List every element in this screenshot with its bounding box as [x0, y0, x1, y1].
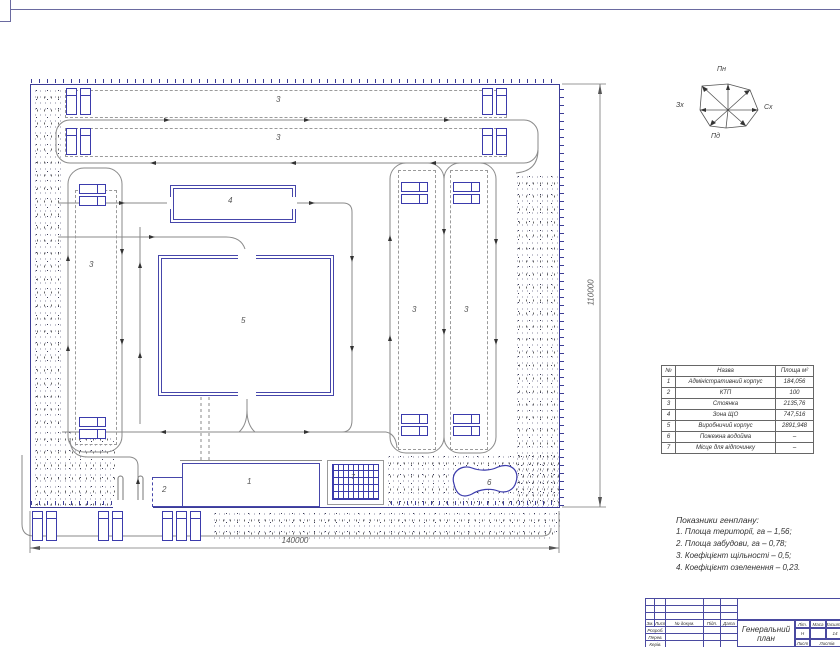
truck-symbol [453, 194, 480, 204]
col-area: Площа м² [776, 366, 814, 377]
title-block-cell [646, 606, 655, 613]
truck-symbol [46, 511, 57, 541]
scale-value-cell: 14 [826, 628, 840, 639]
title-block-cell [666, 606, 704, 613]
sheets-cell: Листів [810, 639, 840, 647]
building-service-zone [170, 185, 296, 223]
rest-area [327, 460, 384, 505]
title-block-cell: Підп. [704, 620, 721, 627]
drawing-title: Генеральний план [738, 625, 794, 643]
truck-symbol [453, 426, 480, 436]
areas-table-cell: 1 [662, 377, 676, 388]
wind-rose [686, 74, 770, 140]
areas-table-row: 6Пожежна водойма– [662, 432, 814, 443]
areas-table-cell: 5 [662, 421, 676, 432]
parking-strip-right-1 [398, 170, 436, 450]
title-block-cell: № докум. [666, 620, 704, 627]
title-block-cell: Дата [721, 620, 738, 627]
building4-left-opening [167, 197, 173, 209]
title-block-cell [666, 599, 704, 606]
building-production [158, 255, 334, 396]
indicators-title: Показники генплану: [676, 514, 840, 526]
compass-east-label: Сх [764, 104, 773, 111]
title-block-cell [721, 641, 738, 647]
scale-header-cell: Масштаб [826, 620, 840, 628]
areas-table-cell: КТП [676, 388, 776, 399]
areas-table-cell: 3 [662, 399, 676, 410]
title-block-cell [704, 613, 721, 620]
areas-table-cell: 4 [662, 410, 676, 421]
fire-pond-shape [453, 465, 517, 495]
areas-table-cell: 6 [662, 432, 676, 443]
areas-table-cell: Місце для відпочинку [676, 443, 776, 454]
label-service-zone: 4 [228, 196, 232, 205]
areas-table-row: 2КТП100 [662, 388, 814, 399]
areas-table-cell: Пожежна водойма [676, 432, 776, 443]
areas-table-row: 7Місце для відпочинку– [662, 443, 814, 454]
truck-symbol [79, 184, 106, 194]
entrance-gap [113, 500, 153, 509]
truck-symbol [401, 182, 428, 192]
indicator-line: 4. Коефіцієнт озеленення – 0,23. [676, 562, 840, 574]
label-pond: 6 [487, 478, 491, 487]
title-block-cell [704, 627, 721, 634]
lit-value-cell: Н [795, 628, 810, 639]
areas-table: № Назва Площа м² 1Адміністративний корпу… [661, 365, 814, 454]
areas-table-cell: Зона ЩО [676, 410, 776, 421]
truck-symbol [32, 511, 43, 541]
title-block-cell: Зм. [646, 620, 655, 627]
label-parking: 3 [412, 305, 416, 314]
title-block-cell [721, 613, 738, 620]
label-admin: 1 [247, 477, 251, 486]
truck-symbol [496, 88, 507, 115]
drawing-title-cell: Генеральний план [737, 620, 795, 647]
title-block-cell: Керів. [646, 641, 666, 647]
areas-table-cell: 747,516 [776, 410, 814, 421]
areas-table-row: 3Стоянка2135,76 [662, 399, 814, 410]
label-parking: 3 [89, 260, 93, 269]
building4-right-opening [291, 197, 297, 209]
areas-table-cell: – [776, 432, 814, 443]
title-block-cell [666, 634, 704, 641]
label-parking: 3 [276, 133, 280, 142]
drawing-sheet: 3 3 3 3 3 4 5 1 2 6 7 140000 110000 Пн З… [0, 0, 840, 647]
compass-south-label: Пд [711, 133, 720, 140]
title-block-cell [704, 634, 721, 641]
truck-symbol [79, 417, 106, 427]
title-block-cell: Перев. [646, 634, 666, 641]
areas-table-row: 5Виробничий корпус2891,948 [662, 421, 814, 432]
truck-symbol [401, 426, 428, 436]
compass-west-label: Зх [676, 102, 684, 109]
col-number: № [662, 366, 676, 377]
areas-table-cell: – [776, 443, 814, 454]
title-block-cell [655, 606, 666, 613]
areas-table-header-row: № Назва Площа м² [662, 366, 814, 377]
lit-header-cell: Літ. [795, 620, 810, 628]
areas-table-cell: 2 [662, 388, 676, 399]
title-block-cell: Розроб. [646, 627, 666, 634]
areas-table-row: 1Адміністративний корпус184,056 [662, 377, 814, 388]
building1-platform-edge [180, 460, 322, 461]
label-parking: 3 [464, 305, 468, 314]
title-block-cell [655, 599, 666, 606]
title-block-cell [666, 627, 704, 634]
label-production: 5 [241, 316, 245, 325]
indicator-line: 2. Площа забудови, га – 0,78; [676, 538, 840, 550]
truck-symbol [453, 182, 480, 192]
label-rest-area: 7 [351, 474, 355, 481]
title-block-cell [646, 613, 655, 620]
parking-strip-right-2 [450, 170, 488, 450]
truck-symbol [66, 88, 77, 115]
truck-symbol [80, 128, 91, 155]
truck-symbol [162, 511, 173, 541]
areas-table-cell: Стоянка [676, 399, 776, 410]
truck-symbol [401, 194, 428, 204]
areas-table-cell: 2135,76 [776, 399, 814, 410]
indicator-line: 1. Площа території, га – 1,56; [676, 526, 840, 538]
truck-symbol [98, 511, 109, 541]
truck-symbol [496, 128, 507, 155]
genplan-indicators: Показники генплану: 1. Площа території, … [676, 514, 840, 574]
title-block-cell [721, 599, 738, 606]
title-block-cell [666, 613, 704, 620]
parking-row-top-2 [65, 128, 507, 157]
building5-bottom-opening [238, 390, 256, 397]
title-block-cell [721, 606, 738, 613]
areas-table-row: 4Зона ЩО747,516 [662, 410, 814, 421]
rest-area-grid [332, 464, 379, 500]
areas-table-cell: 7 [662, 443, 676, 454]
areas-table-cell: Виробничий корпус [676, 421, 776, 432]
mass-value-cell [810, 628, 826, 639]
truck-symbol [79, 429, 106, 439]
parking-row-top-1 [65, 90, 507, 118]
compass-north-label: Пн [717, 66, 726, 73]
truck-symbol [66, 128, 77, 155]
title-block-cell [704, 641, 721, 647]
title-block-cell [655, 613, 666, 620]
truck-symbol [176, 511, 187, 541]
truck-symbol [80, 88, 91, 115]
label-ktp: 2 [162, 485, 166, 494]
title-block-cell: Лист [655, 620, 666, 627]
label-parking: 3 [276, 95, 280, 104]
title-block-left-table: Зм.Лист№ докум.Підп.ДатаРозроб.Перев.Кер… [645, 598, 738, 647]
truck-symbol [453, 414, 480, 424]
parking-strip-left [75, 190, 117, 445]
sheet-cell: Лист [795, 639, 810, 647]
title-block-cell [704, 599, 721, 606]
areas-table-cell: 184,056 [776, 377, 814, 388]
truck-symbol [190, 511, 201, 541]
truck-symbol [482, 128, 493, 155]
dimension-width: 140000 [265, 536, 325, 545]
title-block-cell [721, 634, 738, 641]
title-block: Зм.Лист№ докум.Підп.ДатаРозроб.Перев.Кер… [645, 598, 840, 647]
areas-table-cell: Адміністративний корпус [676, 377, 776, 388]
col-name: Назва [676, 366, 776, 377]
truck-symbol [401, 414, 428, 424]
title-block-cell [646, 599, 655, 606]
title-block-cell [704, 606, 721, 613]
indicator-line: 3. Коефіцієнт щільності – 0,5; [676, 550, 840, 562]
truck-symbol [482, 88, 493, 115]
truck-symbol [112, 511, 123, 541]
mass-header-cell: Маса [810, 620, 826, 628]
title-block-cell [721, 627, 738, 634]
building-ktp [152, 477, 183, 507]
dimension-height: 110000 [587, 279, 596, 305]
title-block-cell [666, 641, 704, 647]
building5-top-opening [238, 252, 256, 259]
doc-number-cell [737, 598, 840, 620]
areas-table-cell: 2891,948 [776, 421, 814, 432]
truck-symbol [79, 196, 106, 206]
areas-table-cell: 100 [776, 388, 814, 399]
